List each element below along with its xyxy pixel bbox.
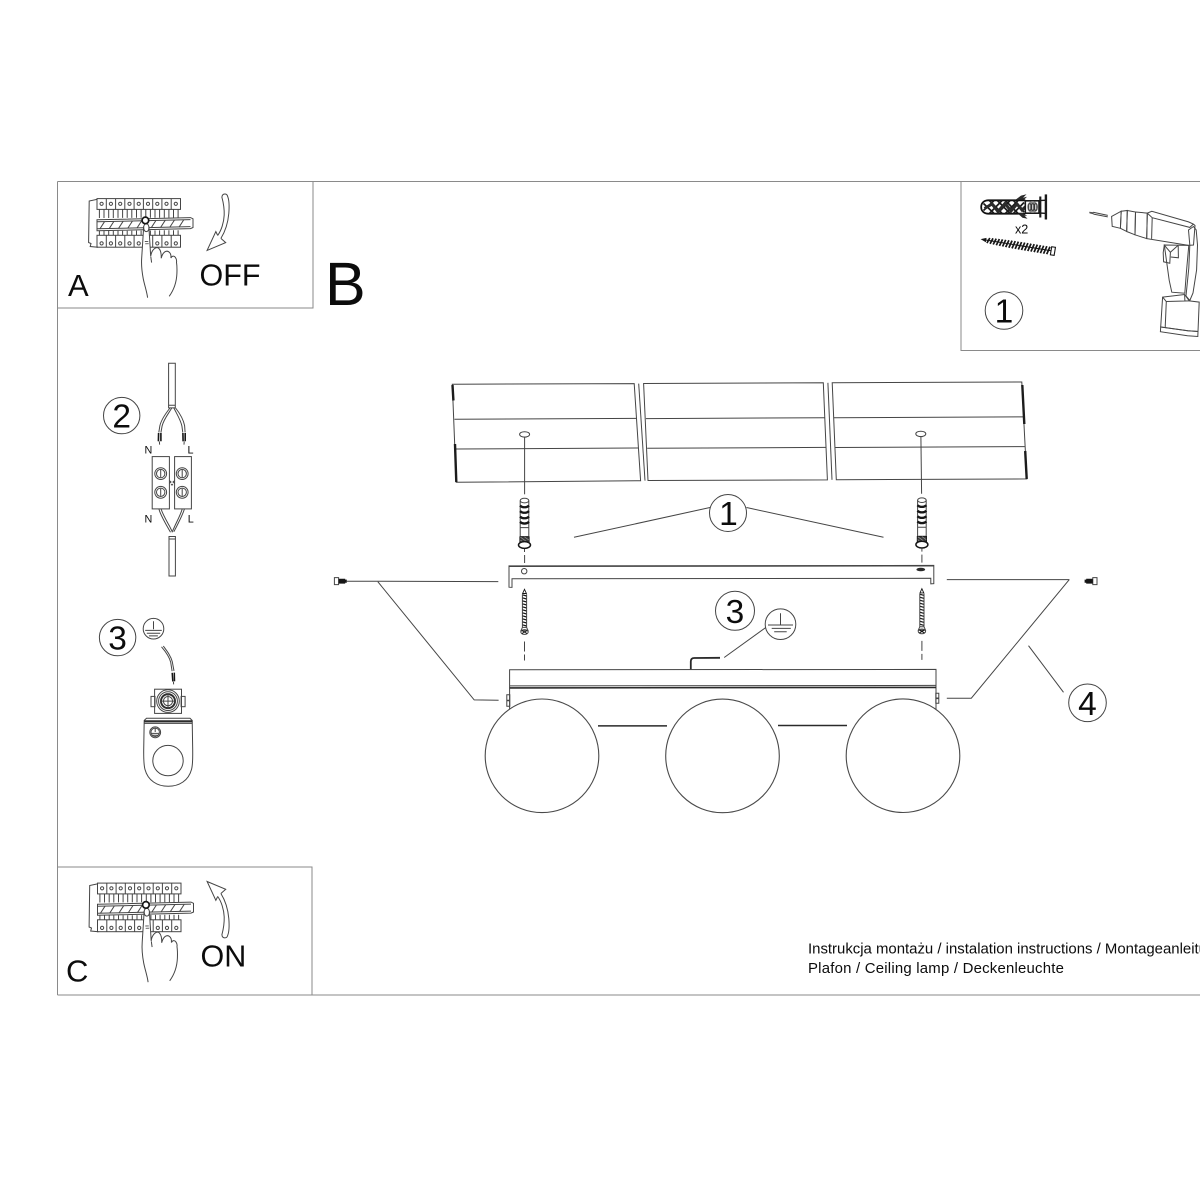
svg-text:3: 3 <box>726 594 745 631</box>
svg-text:4: 4 <box>1078 686 1097 723</box>
svg-text:A: A <box>68 268 89 303</box>
svg-text:N: N <box>145 445 153 457</box>
svg-text:L: L <box>188 445 194 457</box>
svg-text:N: N <box>145 513 153 525</box>
svg-text:x2: x2 <box>1015 222 1028 236</box>
svg-text:Instrukcja montażu / instalati: Instrukcja montażu / instalation instruc… <box>808 941 1200 958</box>
svg-text:1: 1 <box>995 294 1014 331</box>
svg-text:3: 3 <box>108 621 127 658</box>
svg-text:OFF: OFF <box>200 259 261 293</box>
svg-text:ON: ON <box>201 940 247 974</box>
svg-text:2: 2 <box>112 399 131 436</box>
svg-text:Plafon / Ceiling lamp / Decken: Plafon / Ceiling lamp / Deckenleuchte <box>808 960 1064 977</box>
svg-text:B: B <box>325 250 366 318</box>
svg-text:L: L <box>188 513 194 525</box>
svg-text:1: 1 <box>719 496 738 533</box>
svg-text:C: C <box>66 954 88 989</box>
